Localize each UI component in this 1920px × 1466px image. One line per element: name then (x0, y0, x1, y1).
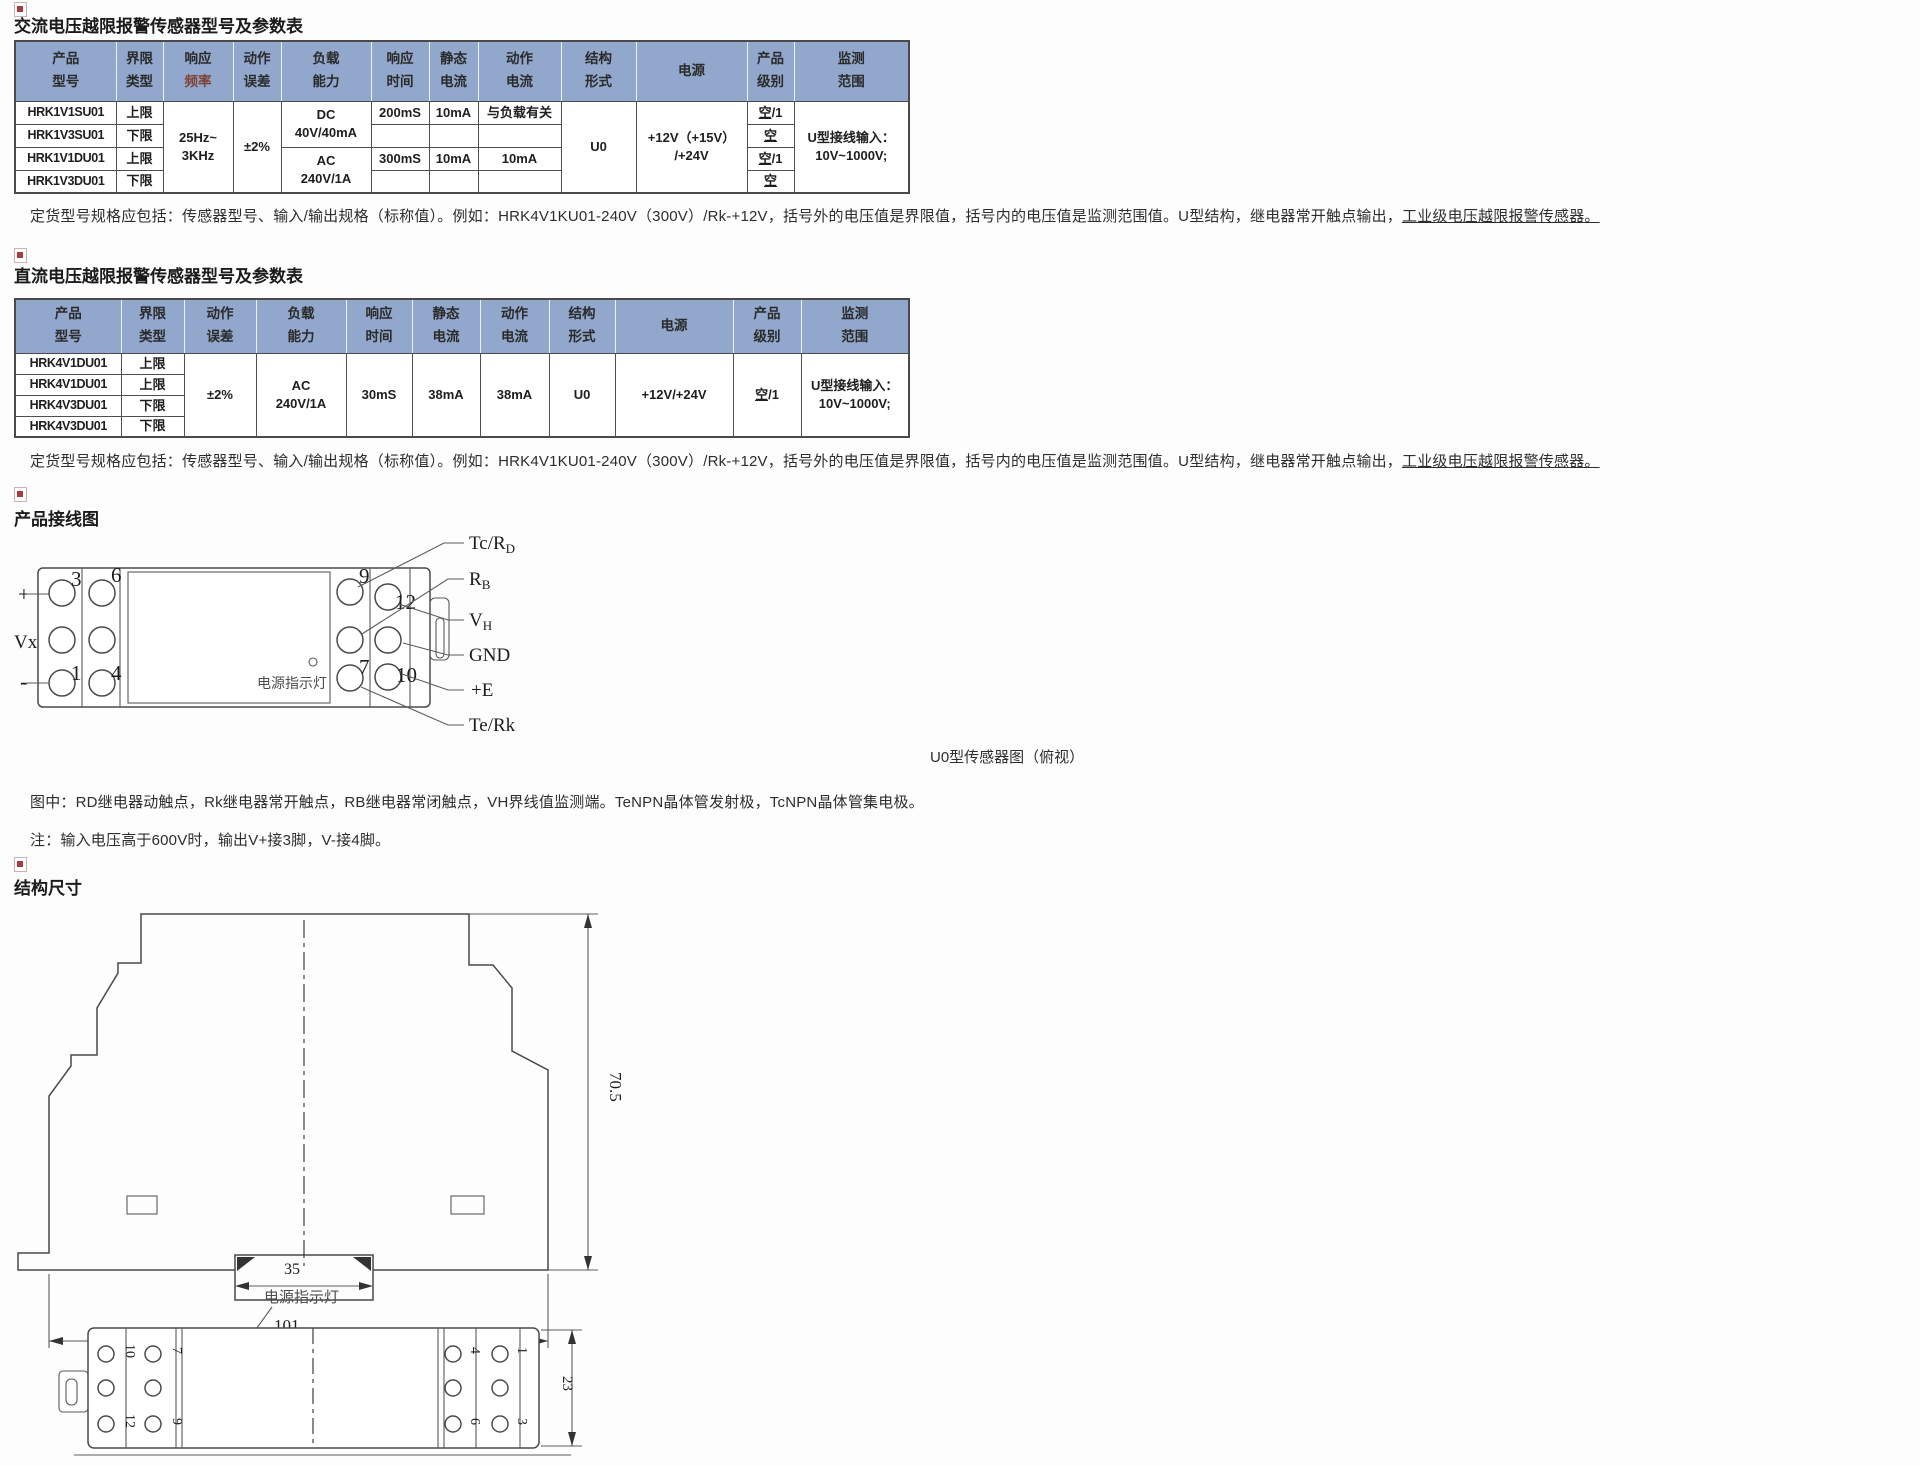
col-header-action-error: 动作 误差 (233, 41, 281, 101)
terminal-4 (445, 1346, 461, 1362)
cell-grade: 空 (747, 170, 794, 193)
clip-slot (66, 1379, 77, 1405)
terminal (445, 1380, 461, 1396)
col-header-range: 监测 范围 (794, 41, 909, 101)
terminal-9 (145, 1416, 161, 1432)
cell-static-current: 10mA (429, 147, 478, 170)
col-header-static-current: 静态 电流 (429, 41, 478, 101)
terminal-1 (492, 1346, 508, 1362)
terminal-6 (445, 1416, 461, 1432)
col-header-model: 产品 型号 (15, 41, 116, 101)
terminal (98, 1380, 114, 1396)
col-header-action-current: 动作 电流 (480, 299, 549, 353)
cell-model: HRK4V1DU01 (15, 353, 121, 374)
cell-grade: 空/1 (733, 353, 801, 437)
cell-limit: 上限 (116, 101, 163, 124)
cell-action-current (478, 170, 561, 193)
note-text: 定货型号规格应包括：传感器型号、输入/输出规格（标称值）。例如：HRK4V1KU… (30, 453, 1402, 470)
terminal-6-label: 6 (111, 563, 122, 587)
cell-response-time: 200mS (371, 101, 429, 124)
diagram-legend-note: 图中：RD继电器动触点，Rk继电器常开触点，RB继电器常闭触点，VH界线值监测端… (30, 791, 924, 812)
cell-grade: 空/1 (747, 101, 794, 124)
vx-label: Vx (14, 632, 38, 653)
terminal-10-label: 10 (122, 1344, 137, 1358)
grade-underlined: 空 (764, 173, 777, 188)
cell-model: HRK4V3DU01 (15, 395, 121, 416)
dc-ordering-note: 定货型号规格应包括：传感器型号、输入/输出规格（标称值）。例如：HRK4V1KU… (30, 450, 1600, 471)
col-header-action-error: 动作 误差 (184, 299, 256, 353)
grade-rest: /1 (772, 151, 783, 166)
cell-error: ±2% (233, 101, 281, 193)
cell-limit: 下限 (121, 395, 184, 416)
col-header-power: 电源 (615, 299, 733, 353)
inner-window-left (127, 1196, 157, 1214)
grade-underlined: 空 (759, 105, 772, 120)
terminal-12-label: 12 (122, 1414, 137, 1428)
col-header-power: 电源 (636, 41, 747, 101)
cell-limit: 下限 (116, 124, 163, 147)
terminal-rb (337, 627, 363, 653)
ac-parameter-table: 产品 型号 界限 类型 响应频率 动作 误差 负载 能力 响应 时间 静态 电流… (14, 40, 910, 194)
terminal (492, 1380, 508, 1396)
gnd-label: GND (469, 645, 510, 666)
table-row: HRK1V1DU01 上限 AC 240V/1A 300mS 10mA 10mA… (15, 147, 909, 170)
terminal-12 (98, 1416, 114, 1432)
cell-static-current: 38mA (412, 353, 480, 437)
cell-frequency: 25Hz~ 3KHz (163, 101, 233, 193)
cell-load: AC 240V/1A (256, 353, 346, 437)
dim-35-label: 35 (284, 1261, 300, 1278)
tc-rd-main: Tc/R (469, 533, 506, 554)
terminal-7-label: 7 (169, 1347, 184, 1354)
col-header-range: 监测 范围 (801, 299, 909, 353)
terminal-6-label: 6 (467, 1418, 482, 1425)
cell-range: U型接线输入： 10V~1000V; (801, 353, 909, 437)
terminal-3 (492, 1416, 508, 1432)
terminal-4-label: 4 (111, 661, 122, 685)
cell-model: HRK4V3DU01 (15, 416, 121, 437)
cell-load-dc: DC 40V/40mA (281, 101, 371, 147)
col-header-model: 产品 型号 (15, 299, 121, 353)
cell-response-time (371, 124, 429, 147)
terminal-vx-left (49, 627, 75, 653)
col-header-load-capacity: 负载 能力 (256, 299, 346, 353)
terminal-1-label: 1 (71, 661, 82, 685)
cell-structure: U0 (561, 101, 636, 193)
col-header-static-current: 静态 电流 (412, 299, 480, 353)
table-row: HRK1V1SU01 上限 25Hz~ 3KHz ±2% DC 40V/40mA… (15, 101, 909, 124)
tc-rd-label: Tc/RD (469, 533, 515, 556)
broken-image-icon (14, 857, 27, 872)
cell-action-current: 10mA (478, 147, 561, 170)
cell-model: HRK1V3SU01 (15, 124, 116, 147)
col-header-grade: 产品 级别 (733, 299, 801, 353)
vh-sub: H (483, 618, 492, 633)
cell-error: ±2% (184, 353, 256, 437)
dc-parameter-table: 产品 型号 界限 类型 动作 误差 负载 能力 响应 时间 静态 电流 动作 电… (14, 298, 910, 438)
col-header-response-frequency: 响应频率 (163, 41, 233, 101)
terminal-7-label: 7 (359, 655, 370, 679)
te-rk-label: Te/Rk (469, 715, 516, 736)
vh-main: V (469, 610, 483, 631)
col-header-limit-type: 界限 类型 (116, 41, 163, 101)
ac-ordering-note: 定货型号规格应包括：传感器型号、输入/输出规格（标称值）。例如：HRK4V1KU… (30, 205, 1600, 226)
cell-limit: 下限 (121, 416, 184, 437)
col-header-limit-type: 界限 类型 (121, 299, 184, 353)
wiring-caption: U0型传感器图（俯视） (930, 746, 1084, 767)
voltage-note: 注：输入电压高于600V时，输出V+接3脚，V-接4脚。 (30, 829, 390, 850)
cell-limit: 上限 (121, 353, 184, 374)
freq-header-line2: 频率 (185, 74, 212, 89)
terminal-4-label: 4 (467, 1347, 482, 1354)
terminal-1-label: 1 (514, 1347, 529, 1354)
vh-label: VH (469, 610, 492, 633)
module-profile-outline (18, 914, 548, 1270)
dc-section-title: 直流电压越限报警传感器型号及参数表 (14, 262, 303, 287)
rb-label: RB (469, 569, 491, 592)
cell-static-current (429, 124, 478, 147)
power-led-label: 电源指示灯 (257, 675, 327, 691)
grade-underlined: 空 (764, 128, 777, 143)
cell-range: U型接线输入： 10V~1000V; (794, 101, 909, 193)
cell-model: HRK1V1DU01 (15, 147, 116, 170)
mounting-clip (59, 1371, 88, 1412)
cell-response-time: 30mS (346, 353, 412, 437)
col-header-structure: 结构 形式 (549, 299, 615, 353)
terminal-vx-right (89, 627, 115, 653)
col-header-action-current: 动作 电流 (478, 41, 561, 101)
terminal-9-label: 9 (169, 1418, 184, 1425)
cell-model: HRK1V3DU01 (15, 170, 116, 193)
terminal (145, 1380, 161, 1396)
plus-e-label: +E (471, 680, 493, 701)
cell-model: HRK1V1SU01 (15, 101, 116, 124)
cell-power: +12V（+15V） /+24V (636, 101, 747, 193)
cell-limit: 上限 (121, 374, 184, 395)
col-header-response-time: 响应 时间 (346, 299, 412, 353)
col-header-grade: 产品 级别 (747, 41, 794, 101)
cell-action-current: 38mA (480, 353, 549, 437)
dim-70-5-label: 70.5 (606, 1072, 625, 1102)
cell-structure: U0 (549, 353, 615, 437)
table-row: HRK1V3DU01 下限 空 (15, 170, 909, 193)
broken-image-icon (14, 487, 27, 502)
cell-action-current (478, 124, 561, 147)
power-led-label: 电源指示灯 (264, 1289, 339, 1306)
grade-rest: /1 (768, 387, 779, 402)
note-underlined-text: 工业级电压越限报警传感器。 (1402, 453, 1600, 470)
note-underlined-text: 工业级电压越限报警传感器。 (1402, 208, 1600, 225)
terminal-10 (98, 1346, 114, 1362)
broken-image-icon (14, 248, 27, 263)
grade-underlined: 空 (759, 151, 772, 166)
wiring-section-title: 产品接线图 (14, 505, 99, 530)
cell-response-time (371, 170, 429, 193)
cell-grade: 空/1 (747, 147, 794, 170)
tc-rd-sub: D (506, 541, 515, 556)
table-row: HRK4V1DU01 上限 ±2% AC 240V/1A 30mS 38mA 3… (15, 353, 909, 374)
cell-limit: 下限 (116, 170, 163, 193)
cell-action-current: 与负载有关 (478, 101, 561, 124)
col-header-load-capacity: 负载 能力 (281, 41, 371, 101)
top-view-dimension-drawing: 电源指示灯 10 7 12 9 4 1 6 3 23 (14, 1278, 654, 1466)
inner-window-right (451, 1196, 484, 1214)
table-row: HRK1V3SU01 下限 空 (15, 124, 909, 147)
freq-header-line1: 响应 (185, 51, 212, 66)
col-header-structure: 结构 形式 (561, 41, 636, 101)
cell-static-current: 10mA (429, 101, 478, 124)
grade-rest: /1 (772, 105, 783, 120)
cell-load-ac: AC 240V/1A (281, 147, 371, 193)
dim-23-label: 23 (559, 1376, 575, 1391)
ac-section-title: 交流电压越限报警传感器型号及参数表 (14, 12, 303, 37)
cell-grade: 空 (747, 124, 794, 147)
rb-main: R (469, 569, 482, 590)
terminal-3-label: 3 (71, 567, 82, 591)
rb-sub: B (482, 577, 491, 592)
col-header-response-time: 响应 时间 (371, 41, 429, 101)
wiring-diagram: 3 6 1 4 9 12 7 10 + Vx - 电源指示灯 Tc/RD RB … (14, 530, 734, 745)
cell-model: HRK4V1DU01 (15, 374, 121, 395)
grade-underlined: 空 (755, 387, 768, 402)
terminal-3-label: 3 (514, 1418, 529, 1425)
minus-label: - (20, 669, 28, 694)
note-text: 定货型号规格应包括：传感器型号、输入/输出规格（标称值）。例如：HRK4V1KU… (30, 208, 1402, 225)
cell-power: +12V/+24V (615, 353, 733, 437)
terminal-7 (145, 1346, 161, 1362)
cell-static-current (429, 170, 478, 193)
cell-limit: 上限 (116, 147, 163, 170)
cell-response-time: 300mS (371, 147, 429, 170)
terminal-gnd (375, 627, 401, 653)
dimensions-section-title: 结构尺寸 (14, 874, 82, 899)
